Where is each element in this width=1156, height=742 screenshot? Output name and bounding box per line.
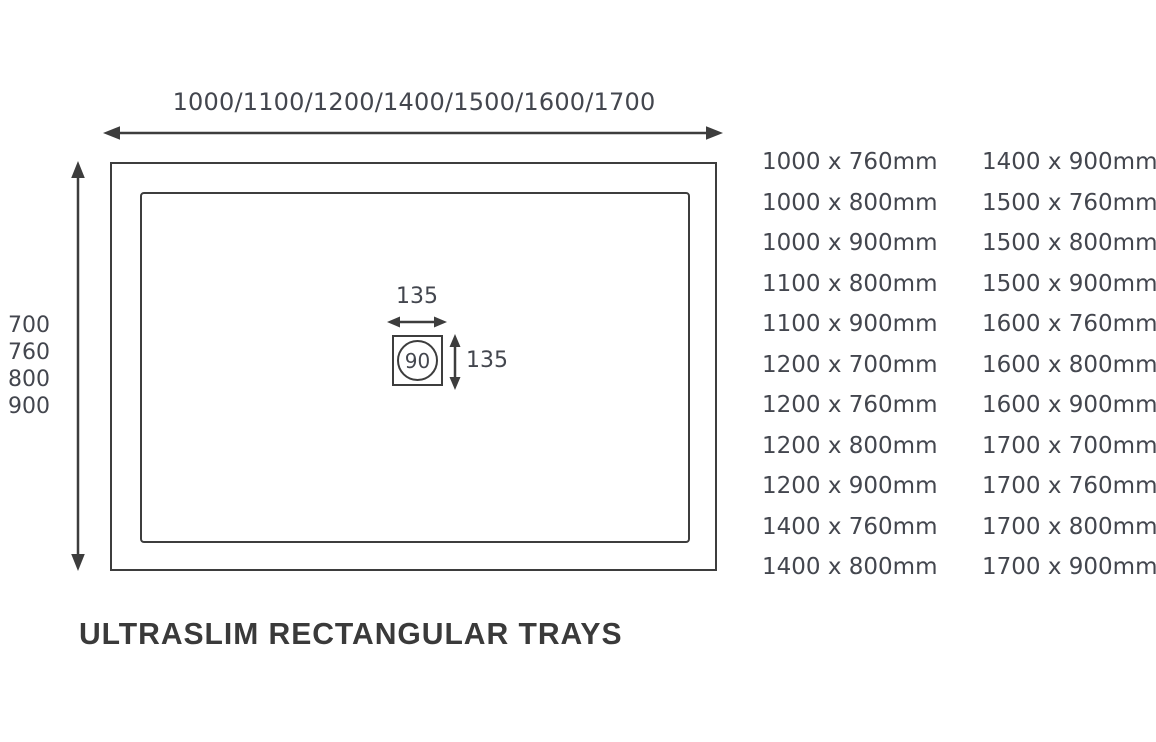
- size-item: 1700 x 800mm: [982, 507, 1156, 548]
- size-item: 1000 x 760mm: [762, 142, 982, 183]
- depth-option: 760: [8, 339, 50, 366]
- size-item: 1700 x 900mm: [982, 547, 1156, 588]
- size-list: 1000 x 760mm 1000 x 800mm 1000 x 900mm 1…: [762, 142, 1156, 588]
- size-column-2: 1400 x 900mm 1500 x 760mm 1500 x 800mm 1…: [982, 142, 1156, 588]
- size-item: 1200 x 700mm: [762, 345, 982, 386]
- depth-option: 800: [8, 366, 50, 393]
- depth-option: 700: [8, 312, 50, 339]
- size-item: 1200 x 760mm: [762, 385, 982, 426]
- size-item: 1200 x 900mm: [762, 466, 982, 507]
- size-item: 1600 x 900mm: [982, 385, 1156, 426]
- waste-height-label: 135: [466, 348, 508, 373]
- waste-width-arrow-icon: [386, 314, 448, 330]
- width-dimension-arrow-icon: [101, 123, 725, 143]
- size-item: 1600 x 800mm: [982, 345, 1156, 386]
- waste-square-outline: 90: [392, 335, 443, 386]
- waste-width-label: 135: [386, 284, 448, 309]
- size-item: 1400 x 760mm: [762, 507, 982, 548]
- size-item: 1200 x 800mm: [762, 426, 982, 467]
- tray-dimension-diagram: 1000/1100/1200/1400/1500/1600/1700 700 7…: [0, 0, 1156, 742]
- size-item: 1100 x 800mm: [762, 264, 982, 305]
- depth-options-label: 700 760 800 900: [8, 312, 50, 420]
- size-item: 1400 x 800mm: [762, 547, 982, 588]
- width-options-label: 1000/1100/1200/1400/1500/1600/1700: [103, 88, 725, 116]
- size-item: 1500 x 900mm: [982, 264, 1156, 305]
- size-item: 1600 x 760mm: [982, 304, 1156, 345]
- size-item: 1100 x 900mm: [762, 304, 982, 345]
- size-column-1: 1000 x 760mm 1000 x 800mm 1000 x 900mm 1…: [762, 142, 982, 588]
- depth-dimension-arrow-icon: [68, 159, 88, 573]
- waste-height-arrow-icon: [447, 333, 463, 391]
- size-item: 1500 x 800mm: [982, 223, 1156, 264]
- page-title: ULTRASLIM RECTANGULAR TRAYS: [79, 616, 622, 652]
- size-item: 1500 x 760mm: [982, 183, 1156, 224]
- size-item: 1700 x 700mm: [982, 426, 1156, 467]
- size-item: 1400 x 900mm: [982, 142, 1156, 183]
- size-item: 1000 x 800mm: [762, 183, 982, 224]
- size-item: 1000 x 900mm: [762, 223, 982, 264]
- depth-option: 900: [8, 393, 50, 420]
- size-item: 1700 x 760mm: [982, 466, 1156, 507]
- waste-outlet-circle: 90: [397, 340, 438, 381]
